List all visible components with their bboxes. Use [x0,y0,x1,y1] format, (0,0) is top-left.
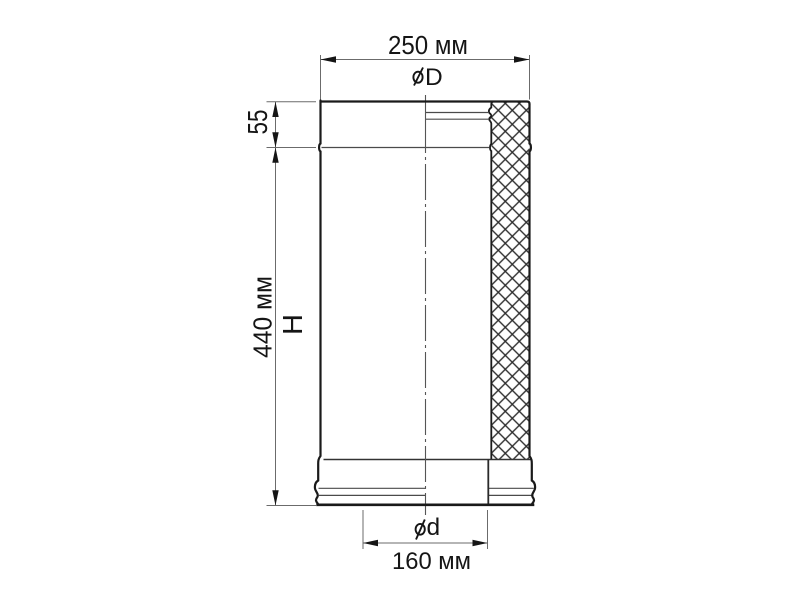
svg-text:D: D [425,64,443,91]
svg-text:250 мм: 250 мм [388,32,468,60]
svg-text:d: d [427,514,441,541]
svg-text:440 мм: 440 мм [250,276,278,358]
svg-text:55: 55 [242,110,273,135]
svg-text:H: H [277,314,308,335]
svg-text:160 мм: 160 мм [392,548,471,575]
